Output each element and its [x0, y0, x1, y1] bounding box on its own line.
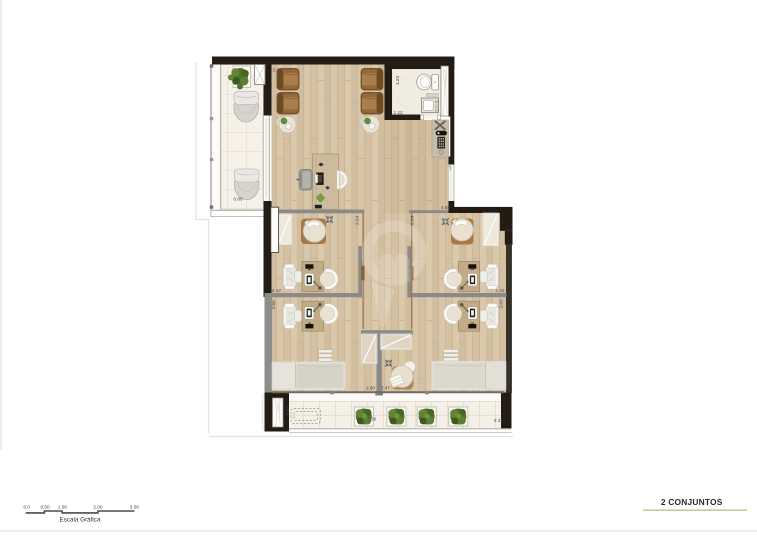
svg-text:3.16: 3.16 — [273, 68, 283, 73]
svg-text:2 CONJUNTOS: 2 CONJUNTOS — [661, 497, 723, 507]
svg-text:1.22: 1.22 — [394, 110, 404, 115]
svg-text:2.42: 2.42 — [495, 288, 505, 293]
svg-text:1.23: 1.23 — [395, 75, 400, 85]
svg-text:2.00: 2.00 — [93, 504, 103, 509]
svg-text:0.87: 0.87 — [285, 406, 290, 416]
svg-text:0.0: 0.0 — [24, 504, 31, 509]
svg-text:Escala Gráfica: Escala Gráfica — [60, 516, 101, 523]
svg-text:0.86: 0.86 — [234, 197, 244, 202]
svg-text:3.31: 3.31 — [494, 418, 504, 423]
svg-text:2.24: 2.24 — [410, 215, 415, 225]
svg-text:2.90: 2.90 — [366, 386, 376, 391]
svg-text:3.47: 3.47 — [381, 386, 391, 391]
svg-text:2.60: 2.60 — [499, 299, 504, 309]
svg-text:2.60: 2.60 — [271, 300, 276, 310]
svg-text:4.88: 4.88 — [441, 205, 451, 210]
svg-text:2.56: 2.56 — [368, 416, 377, 421]
svg-text:2.24: 2.24 — [355, 215, 360, 225]
svg-text:1.00: 1.00 — [58, 504, 68, 509]
svg-text:2.42: 2.42 — [272, 288, 282, 293]
svg-text:3.00: 3.00 — [130, 504, 140, 509]
svg-text:0.50: 0.50 — [41, 504, 51, 509]
